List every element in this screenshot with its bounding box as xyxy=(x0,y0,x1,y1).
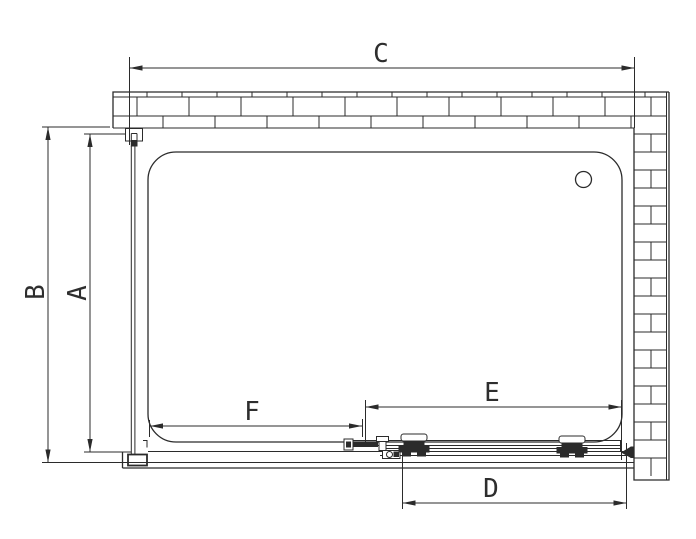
wall-bracket-right xyxy=(621,447,635,459)
right-wall-section xyxy=(634,92,669,480)
drain-circle xyxy=(576,172,592,188)
arrowhead-up-icon xyxy=(87,134,92,147)
dimension-e-label: E xyxy=(484,378,500,408)
arrowhead-down-icon xyxy=(87,439,92,452)
roller-right xyxy=(557,436,588,458)
arrowhead-right-icon xyxy=(349,423,362,428)
arrowhead-right-icon xyxy=(622,65,635,70)
technical-drawing-canvas: C B A F E D xyxy=(0,0,696,539)
dimension-d: D xyxy=(403,443,627,509)
arrowhead-left-icon xyxy=(403,500,416,505)
wall-profile-bracket xyxy=(126,129,143,147)
arrowhead-left-icon xyxy=(366,404,379,409)
dimension-c-label: C xyxy=(373,39,389,69)
brick-joints-row2 xyxy=(137,97,605,116)
dimension-c-extension-lines xyxy=(130,57,635,145)
dimension-b-label: B xyxy=(21,284,51,300)
brick-courses xyxy=(634,134,667,458)
panel-clip xyxy=(143,441,147,448)
glass-panel-lines xyxy=(131,146,135,455)
arrowhead-up-icon xyxy=(45,127,50,140)
arrowhead-right-icon xyxy=(609,404,622,409)
sliding-door-assembly xyxy=(344,434,635,459)
door-handle xyxy=(344,437,400,459)
brick-joints-row3 xyxy=(163,116,631,128)
fixed-glass-panel xyxy=(126,129,148,466)
dimension-d-label: D xyxy=(483,474,499,504)
arrowhead-down-icon xyxy=(45,450,50,463)
brick-joints-row1 xyxy=(147,92,645,97)
dimension-f: F xyxy=(150,397,363,437)
panel-foot-block xyxy=(128,455,147,466)
top-wall-section xyxy=(113,92,669,128)
dimension-a-label: A xyxy=(63,285,93,301)
dimension-d-extension-lines xyxy=(403,443,627,509)
dimension-a: A xyxy=(63,134,131,452)
arrowhead-left-icon xyxy=(130,65,143,70)
dimension-f-label: F xyxy=(244,397,260,427)
arrowhead-right-icon xyxy=(614,500,627,505)
technical-drawing-page: C B A F E D xyxy=(0,0,696,539)
shower-tray-outline xyxy=(148,152,622,442)
